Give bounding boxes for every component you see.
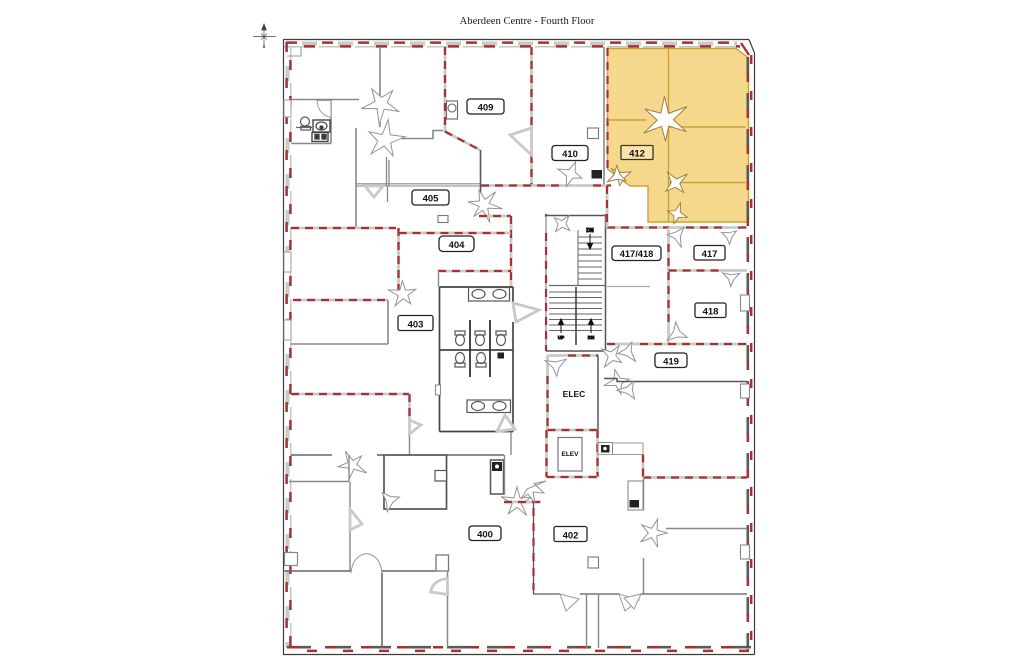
svg-text:412: 412: [629, 149, 645, 160]
svg-text:402: 402: [563, 531, 579, 542]
svg-text:403: 403: [408, 320, 424, 331]
svg-text:404: 404: [449, 240, 466, 251]
svg-text:ELEV: ELEV: [562, 451, 580, 458]
svg-text:405: 405: [423, 194, 440, 205]
svg-text:UP: UP: [558, 335, 564, 340]
svg-text:DN: DN: [586, 228, 594, 234]
svg-text:409: 409: [478, 103, 494, 114]
svg-text:410: 410: [562, 149, 578, 160]
svg-text:Aberdeen Centre - Fourth Floor: Aberdeen Centre - Fourth Floor: [460, 16, 595, 27]
svg-text:418: 418: [703, 307, 719, 318]
svg-text:417: 417: [702, 249, 718, 260]
svg-text:ELEC: ELEC: [563, 389, 586, 399]
svg-text:419: 419: [663, 357, 679, 368]
svg-text:400: 400: [477, 530, 493, 541]
svg-text:417/418: 417/418: [620, 249, 654, 259]
svg-text:DN: DN: [588, 335, 595, 340]
